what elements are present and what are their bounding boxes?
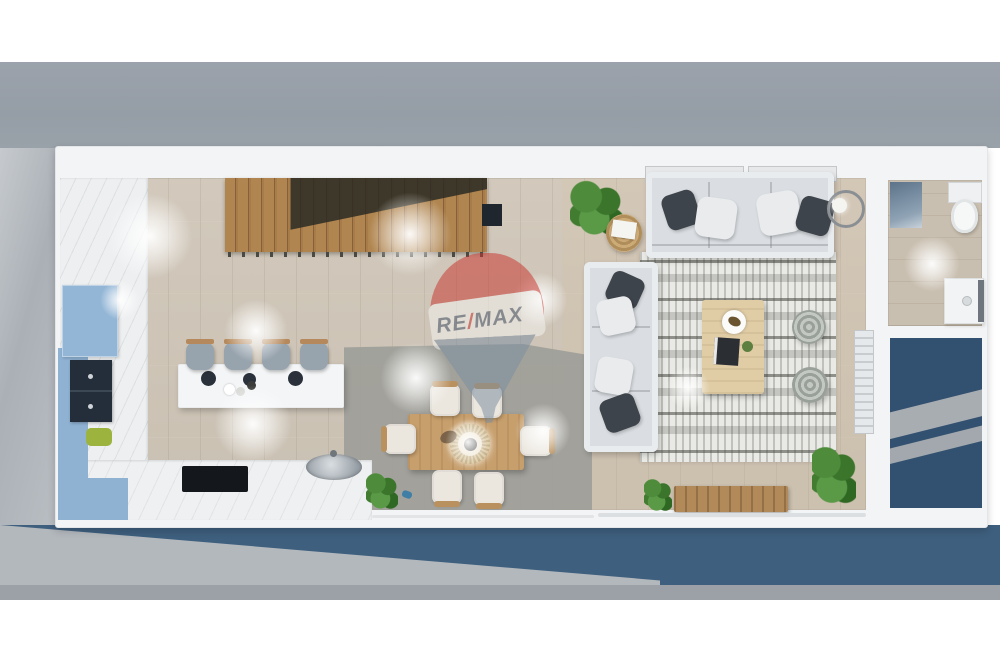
- dining-chair-bottom-1: [432, 470, 462, 504]
- cutting-board: [86, 428, 112, 446]
- sofa-left-pillow-light-2: [593, 355, 635, 397]
- floor-pouf-1: [792, 310, 826, 344]
- vanity-fixture-strip: [978, 280, 984, 322]
- dining-chair-bottom-1-back: [434, 501, 460, 507]
- cooktop: [182, 466, 248, 492]
- oven-divider: [70, 390, 112, 392]
- bathroom-shower-glass: [890, 182, 922, 228]
- balloon-bottom-blue: [434, 334, 540, 425]
- remax-text-re: RE: [435, 311, 469, 338]
- dining-centerpiece-bowl: [464, 438, 477, 451]
- dining-chair-left: [384, 424, 416, 454]
- terrace-bottom-strip: [0, 585, 1000, 600]
- exterior-concrete-top-band: [0, 62, 1000, 148]
- bar-stool-4: [300, 342, 328, 370]
- kitchen-cabinet-blue-corner: [58, 478, 128, 520]
- radiator: [854, 330, 874, 434]
- dining-chair-bottom-2-back: [476, 503, 502, 509]
- dining-chair-left-back: [381, 426, 387, 452]
- bar-stool-2: [224, 342, 252, 370]
- bar-stool-4-back: [300, 339, 328, 344]
- dining-chair-right: [520, 426, 552, 456]
- island-plate-1: [224, 384, 235, 395]
- bench-plant-right: [812, 444, 856, 506]
- coffee-table-plant-disc: [742, 341, 753, 352]
- kitchen-island: [178, 364, 344, 408]
- bar-stool-3-back: [262, 339, 290, 344]
- kitchen-faucet: [330, 450, 337, 457]
- right-patio: [890, 338, 982, 508]
- toilet-bowl: [951, 199, 978, 233]
- remax-watermark-balloon: RE/MAX: [430, 253, 544, 425]
- bench-plant-left: [644, 478, 672, 512]
- dining-plant: [366, 472, 398, 510]
- bar-stool-1: [186, 342, 214, 370]
- floor-lamp-bulb: [832, 198, 847, 213]
- sliding-door-line-1: [598, 513, 866, 517]
- oven-handle-dot-2: [88, 404, 93, 409]
- dining-chair-right-back: [549, 428, 555, 454]
- rattan-table-paper: [611, 219, 637, 239]
- bar-stool-2-back: [224, 339, 252, 344]
- sliding-door-line-2: [372, 515, 594, 518]
- stair-wall-dark-panel: [482, 204, 502, 226]
- exterior-concrete-left: [0, 148, 57, 528]
- floor-plan-render: RE/MAX: [0, 0, 1000, 667]
- kitchen-sink: [306, 454, 362, 480]
- island-bowl-dark: [247, 381, 256, 390]
- floor-pouf-2: [792, 367, 828, 403]
- dining-chair-bottom-2: [474, 472, 504, 506]
- sofa-top-pillow-light-1: [693, 195, 738, 240]
- bar-stool-1-back: [186, 339, 214, 344]
- island-hob-1: [201, 371, 216, 386]
- oven-handle-dot-1: [88, 374, 93, 379]
- vanity-sink-dot: [962, 296, 972, 306]
- island-hob-3: [288, 371, 303, 386]
- sofa-left-pillow-light-1: [595, 295, 638, 338]
- sofa-top-front-edge: [652, 244, 828, 246]
- island-plate-2: [236, 387, 245, 396]
- coffee-table-book: [713, 337, 740, 366]
- bar-stool-3: [262, 342, 290, 370]
- tv-bench: [674, 486, 788, 512]
- sofa-top-pillow-light-2: [755, 189, 804, 238]
- refrigerator: [62, 285, 118, 357]
